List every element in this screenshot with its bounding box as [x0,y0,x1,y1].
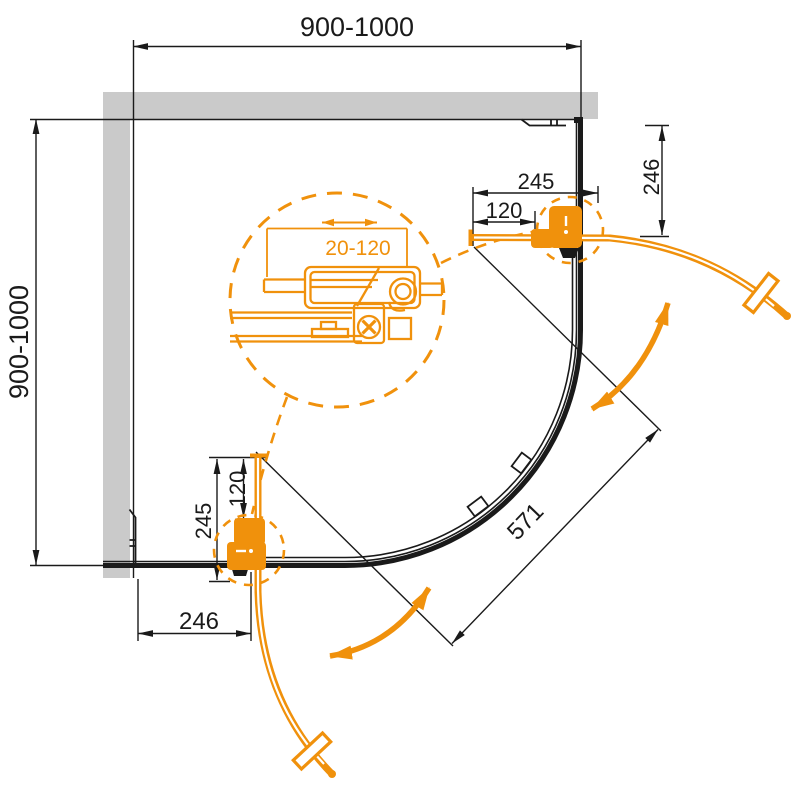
dim-adjustment-label: 20-120 [325,237,390,260]
door-tip [783,312,791,320]
dim-246-right: 246 [639,159,664,196]
wall-top [103,92,598,119]
door-leaf-open [470,238,788,318]
dim-571-label: 571 [502,498,549,546]
door-swing-arc-bottom [330,588,429,656]
shower-enclosure-plan: 900-1000 900-1000 245 120 246 245 120 24… [0,0,800,800]
door-top-right [470,206,791,409]
technical-drawing: 900-1000 900-1000 245 120 246 245 120 24… [0,0,800,800]
dim-120-top: 120 [486,198,523,223]
dim-120-bottom: 120 [225,471,250,508]
wall-left [103,92,130,578]
dimension-width-label: 900-1000 [300,12,414,42]
dim-245-bottom: 245 [191,503,216,540]
dim-246-bottom: 246 [179,608,219,635]
door-tip [328,770,336,778]
dim-245-top: 245 [518,169,555,194]
wall-profile-left [130,510,136,566]
dimension-depth: 900-1000 [4,119,103,566]
dimension-depth-label: 900-1000 [4,285,34,399]
door-swing-arc-top [592,303,668,409]
hinge-carriage-bottom [234,518,265,545]
roller-wheel [390,279,416,305]
door-bottom-left [227,455,429,778]
